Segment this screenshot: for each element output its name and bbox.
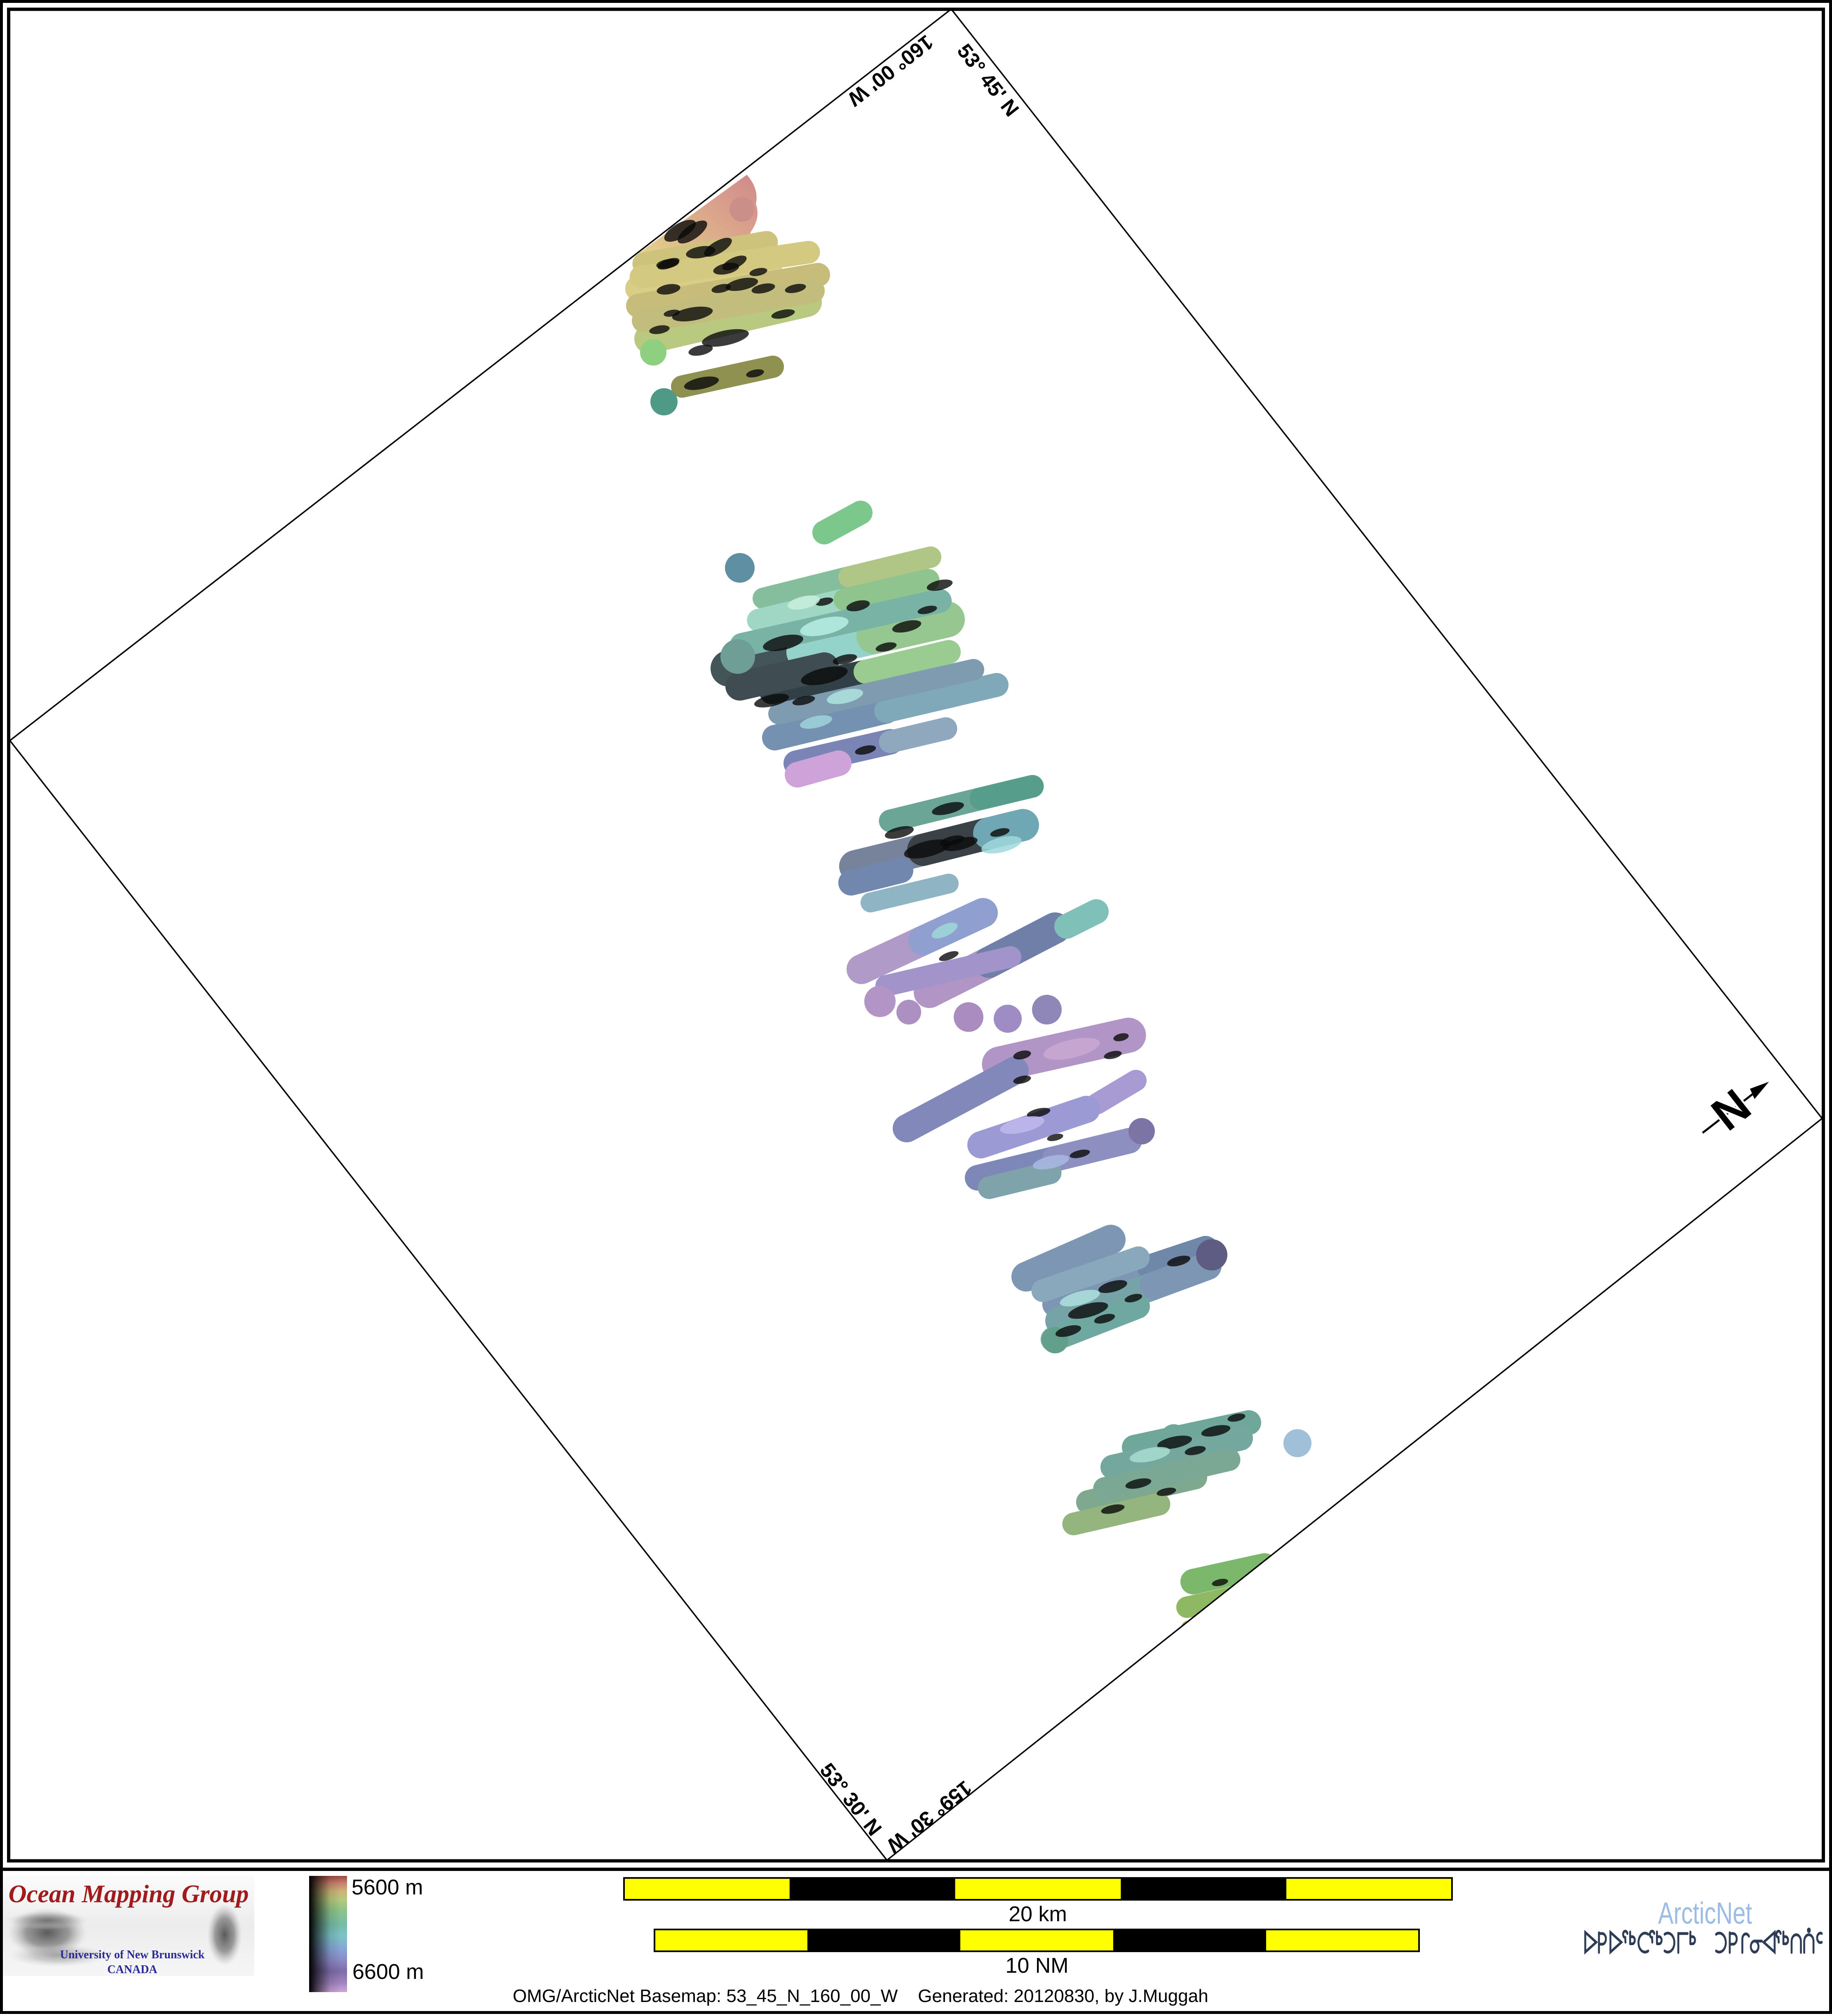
svg-text:6600 m: 6600 m xyxy=(352,1960,424,1984)
svg-text:University of New Brunswick: University of New Brunswick xyxy=(60,1948,205,1961)
svg-text:20 km: 20 km xyxy=(1009,1902,1067,1926)
svg-text:CANADA: CANADA xyxy=(107,1963,157,1976)
svg-text:5600 m: 5600 m xyxy=(352,1875,423,1899)
svg-text:ArcticNet: ArcticNet xyxy=(1658,1896,1752,1930)
svg-text:10 NM: 10 NM xyxy=(1005,1954,1068,1978)
svg-text:Ocean Mapping Group: Ocean Mapping Group xyxy=(9,1880,249,1908)
svg-text:OMG/ArcticNet Basemap: 53_45_N: OMG/ArcticNet Basemap: 53_45_N_160_00_W … xyxy=(513,1986,1208,2006)
